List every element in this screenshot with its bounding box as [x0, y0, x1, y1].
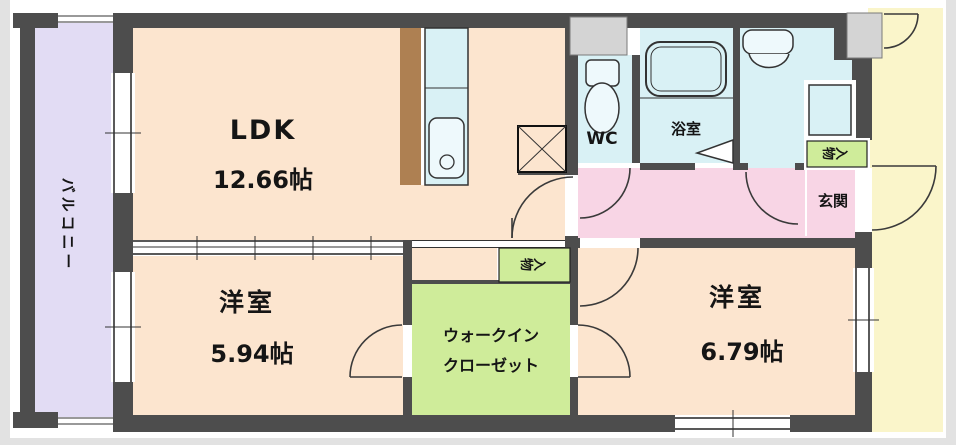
ldk-nook [412, 248, 497, 284]
shaft-cross-icon [518, 126, 566, 172]
bedroom-left-label: 洋室 [219, 288, 275, 317]
page-edge-bottom [0, 438, 956, 445]
entrance-label: 玄関 [818, 192, 848, 210]
page-edge-left [0, 0, 10, 445]
page-edge-right [946, 0, 956, 445]
storage-hall-label: 物入 [820, 147, 848, 160]
wc-label: WC [586, 129, 617, 149]
ldk-label: LDK [230, 115, 297, 146]
wic-label-line2: クローゼット [443, 356, 539, 375]
floorplan-drawing: LDK 12.66帖 洋室 5.94帖 洋室 6.79帖 ウォークイン クローゼ… [0, 0, 956, 445]
ldk-size-label: 12.66帖 [213, 166, 313, 194]
bedroom-right-label: 洋室 [709, 283, 765, 312]
balcony-label: バルコニー [59, 178, 77, 273]
bedroom-left-size-label: 5.94帖 [210, 340, 293, 368]
room-walk-in-closet [412, 284, 570, 418]
ldk-nook-opening [412, 240, 570, 248]
wic-label-line1: ウォークイン [443, 326, 539, 345]
toilet-icon [585, 60, 619, 133]
washing-machine-icon [804, 80, 856, 140]
room-bedroom-left [133, 256, 403, 415]
kitchen-counter [400, 28, 468, 185]
shaft-gray-block-left [570, 17, 627, 55]
bathroom-label: 浴室 [671, 120, 701, 138]
storage-center-label: 物入 [518, 258, 546, 271]
room-ldk [133, 28, 565, 240]
floorplan: LDK 12.66帖 洋室 5.94帖 洋室 6.79帖 ウォークイン クローゼ… [0, 0, 956, 445]
bathtub-icon [640, 42, 733, 98]
shaft-gray-block-right [847, 13, 882, 58]
room-bedroom-right [578, 248, 855, 415]
bedroom-right-size-label: 6.79帖 [700, 338, 783, 366]
